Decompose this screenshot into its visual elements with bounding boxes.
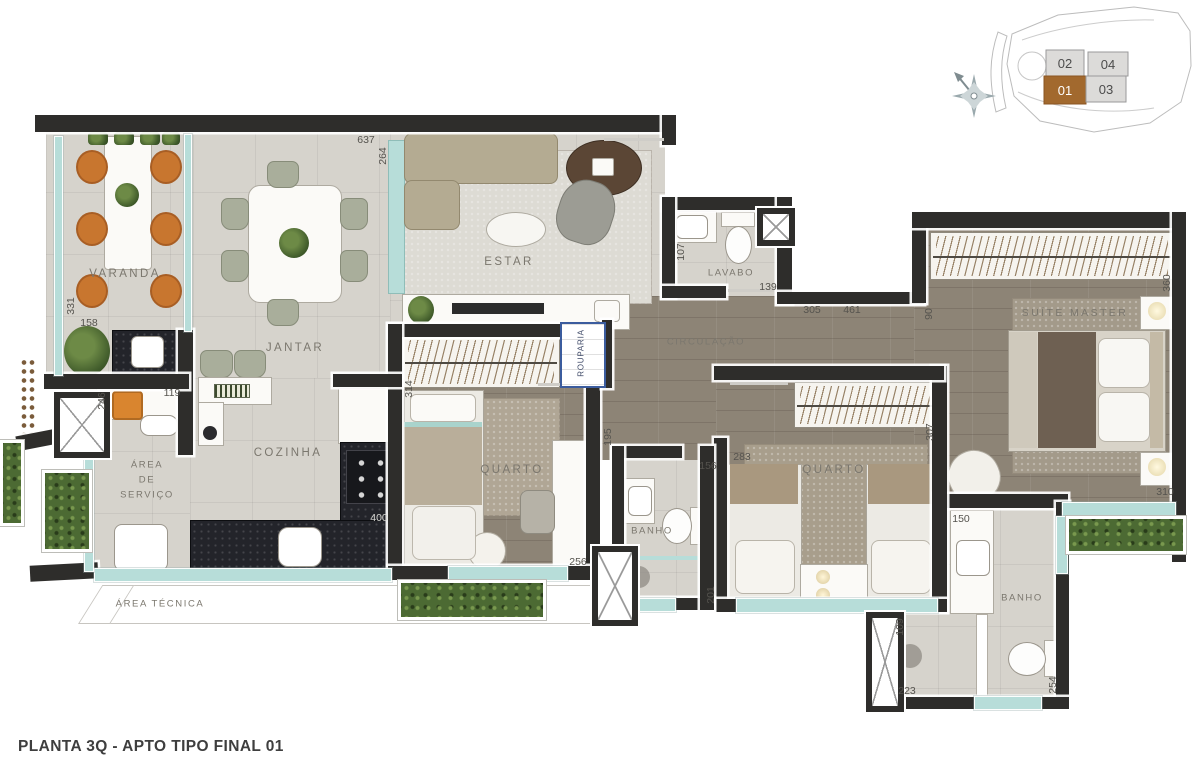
wall-segment [35,115,676,132]
dim-shower-width: 223 [898,685,916,697]
laundry-washbasin [140,415,178,436]
coffee-table [486,212,546,247]
quarto2-bed-right-pillow [871,540,931,594]
suite-window [1062,502,1176,517]
dim-banho2-side: 254 [1047,676,1059,694]
room-label-area-servico-1: ÁREA [131,460,163,471]
dim-bancada-varanda: 158 [80,317,98,329]
planter-box [140,132,160,145]
suite-bed-pillow [1098,392,1150,442]
varanda-chair [150,150,182,184]
table-plant [115,183,139,207]
fridge [338,388,392,444]
garden-quarto1 [398,580,546,620]
room-label-cozinha: COZINHA [254,447,323,459]
quarto2-door-leaf [730,382,788,385]
lavabo-toilet-tank [721,212,755,227]
quarto1-duvet [412,506,476,560]
room-label-rouparia: ROUPARIA [577,329,586,377]
quarto1-chair [520,490,555,534]
quarto2-wardrobe [794,382,936,428]
tv [452,303,544,314]
dim-lavabo-side: 107 [675,243,687,261]
console-object [594,300,620,322]
planter-box [162,132,180,145]
dim-banho1-side: 201 [705,586,717,604]
shaft [592,546,638,626]
quarto2-window [736,598,938,613]
planter-box [88,132,108,145]
varanda-chair [150,212,182,246]
quarto2-lamp [816,570,830,584]
suite-bed-foot [1009,332,1037,448]
suite-bed-pillow [1098,338,1150,388]
dining-chair [221,198,249,230]
console-plant [408,296,434,324]
quarto1-wardrobe [402,336,560,388]
wall-segment [388,324,562,337]
room-label-circulacao: CIRCULAÇÃO [667,337,745,348]
dim-cozinha-bancada: 400 [370,512,388,524]
peninsula-faucet [203,426,217,440]
kitchen-sink [278,527,322,567]
wall-segment [777,292,924,304]
planter-box [114,132,134,145]
room-label-jantar: JANTAR [266,342,324,354]
suite-lamp [1148,302,1166,320]
room-label-area-servico-3: SERVIÇO [120,490,174,501]
quarto1-window [448,566,568,581]
room-label-suite-master: SUÍTE MASTER [1022,307,1128,319]
garden-left [42,470,92,552]
counter-chair [234,350,266,378]
wall-segment [388,324,402,580]
laundry-basket [112,391,143,420]
key-plan-unit-01-label: 01 [1058,83,1072,98]
dim-quarto1-side: 314 [403,380,415,398]
dining-centerpiece [279,228,309,258]
quarto2-bed-left-blanket [730,464,798,504]
varanda-chair [76,212,108,246]
dim-circ-side: 195 [602,428,614,446]
room-label-area-tecnica: ÁREA TÉCNICA [116,599,205,610]
dim-circ-b: 461 [843,304,861,316]
gourmet-sink [131,336,164,368]
entry-door-leaf [604,138,664,141]
quarto1-blanket [404,422,482,505]
page-title: PLANTA 3Q - APTO TIPO FINAL 01 [18,738,284,756]
palm-plant [64,326,110,376]
trellis [20,358,36,436]
suite-wardrobe [930,232,1174,280]
wall-segment [934,494,1068,508]
dim-servico-top: 119 [164,387,181,399]
wall-segment [932,366,947,612]
room-label-banho1: BANHO [631,526,673,537]
banho1-sink [628,486,652,516]
suite-headboard [1150,332,1163,448]
dining-chair [340,198,368,230]
room-label-quarto1: QUARTO [480,464,543,476]
quarto2-bed-left-pillow [735,540,795,594]
estar-console [388,140,405,294]
sofa-chaise [404,180,460,230]
garden-edge [0,440,24,526]
room-label-varanda: VARANDA [89,268,161,280]
room-label-lavabo: LAVABO [708,268,754,279]
dim-shower-side: 109 [894,618,906,636]
banho2-partition [976,614,988,700]
dim-servico-side: 246 [96,392,108,410]
lavabo-toilet [725,226,752,264]
dim-lavabo-width: 139 [759,281,777,293]
wall-segment [662,197,675,298]
dim-banho2-top: 150 [952,513,970,525]
dim-estar-side: 264 [377,147,389,165]
room-label-banho2: BANHO [1001,593,1043,604]
key-plan-unit-02-label: 02 [1058,56,1072,71]
dim-quarto2-side: 307 [924,423,936,441]
north-arrow-icon [950,70,998,122]
varanda-railing [54,136,63,376]
sofa [404,133,558,184]
counter-chair [200,350,233,378]
suite-bed-blanket [1038,332,1096,448]
wall-segment [662,286,726,298]
wall-segment [333,374,402,387]
room-label-estar: ESTAR [484,256,534,268]
cooktop [346,450,389,504]
banho2-window [974,696,1042,710]
wall-segment [662,115,676,145]
dim-quarto2-top: 283 [733,451,751,463]
quarto2-bed-right-blanket [868,464,936,504]
side-table-book [592,158,614,176]
key-plan: 02 04 01 03 [982,4,1196,138]
shaft [757,208,795,246]
quarto1-pillow [410,394,476,422]
dining-chair [221,250,249,282]
dim-banho1-top: 156 [699,460,717,472]
varanda-jantar-glass [184,134,192,332]
dining-chair [340,250,368,282]
dim-estar-top: 637 [357,134,375,146]
suite-lamp [1148,458,1166,476]
laundry-tank [114,524,168,571]
dim-suite-window: 310 [1156,486,1174,498]
lavabo-sink [676,215,708,239]
room-label-quarto2: QUARTO [802,464,865,476]
dim-quarto1-width: 256 [569,556,587,568]
room-label-area-servico-2: DE [139,475,155,486]
wall-segment [912,212,1186,228]
key-plan-unit-03-label: 03 [1099,82,1113,97]
key-plan-unit-04-label: 04 [1101,57,1115,72]
floor-plan: VARANDA JANTAR ESTAR LAVABO CIRCULAÇÃO R… [0,0,1200,765]
dim-circ-a: 305 [803,304,821,316]
banho2-toilet [1008,642,1046,676]
dish-rack [214,384,250,398]
dining-chair [267,161,299,188]
banho2-sink [956,540,990,576]
dim-varanda-side: 331 [65,297,77,315]
cozinha-window [94,568,392,582]
wall-segment [714,366,944,380]
dim-suite-entry: 90 [923,308,935,320]
dim-suite-side: 360 [1161,274,1173,292]
garden-suite [1066,516,1186,554]
varanda-chair [76,150,108,184]
dining-chair [267,299,299,326]
